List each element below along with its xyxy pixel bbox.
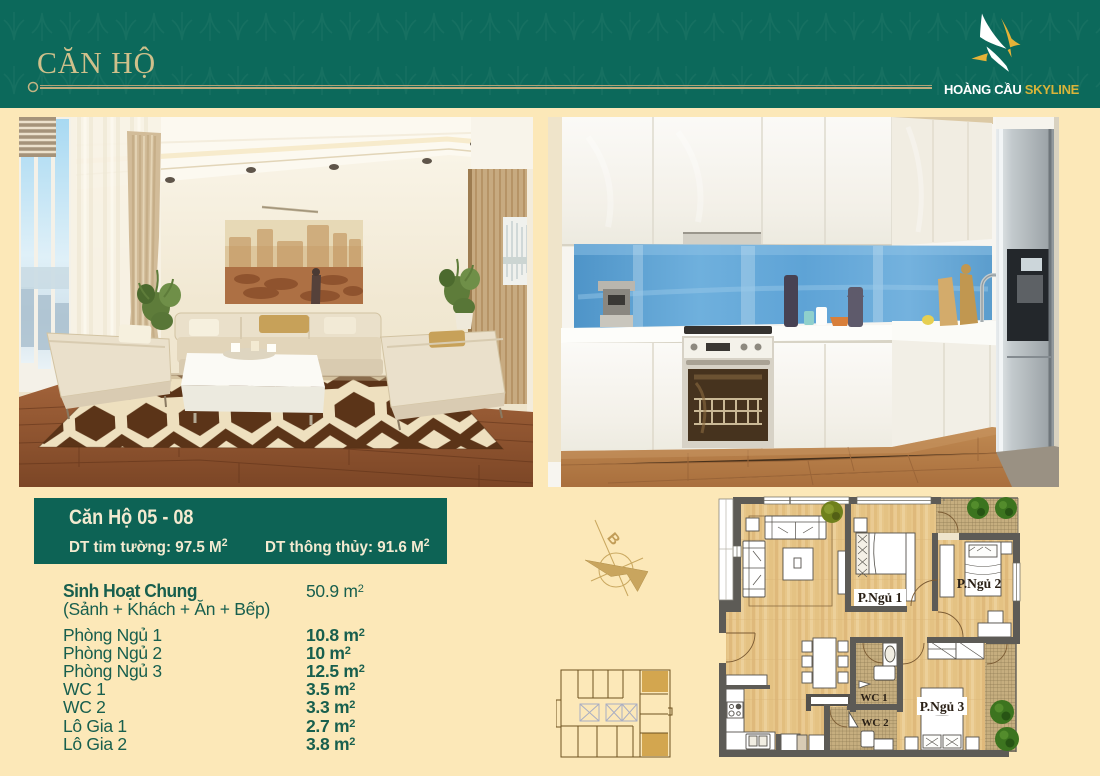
svg-text:WC 2: WC 2 xyxy=(861,717,889,729)
svg-text:P.Ngủ 3: P.Ngủ 3 xyxy=(920,699,965,714)
svg-text:P.Ngủ 1: P.Ngủ 1 xyxy=(858,590,903,605)
svg-text:P.Ngủ 2: P.Ngủ 2 xyxy=(957,576,1002,591)
svg-text:WC 1: WC 1 xyxy=(860,692,887,704)
